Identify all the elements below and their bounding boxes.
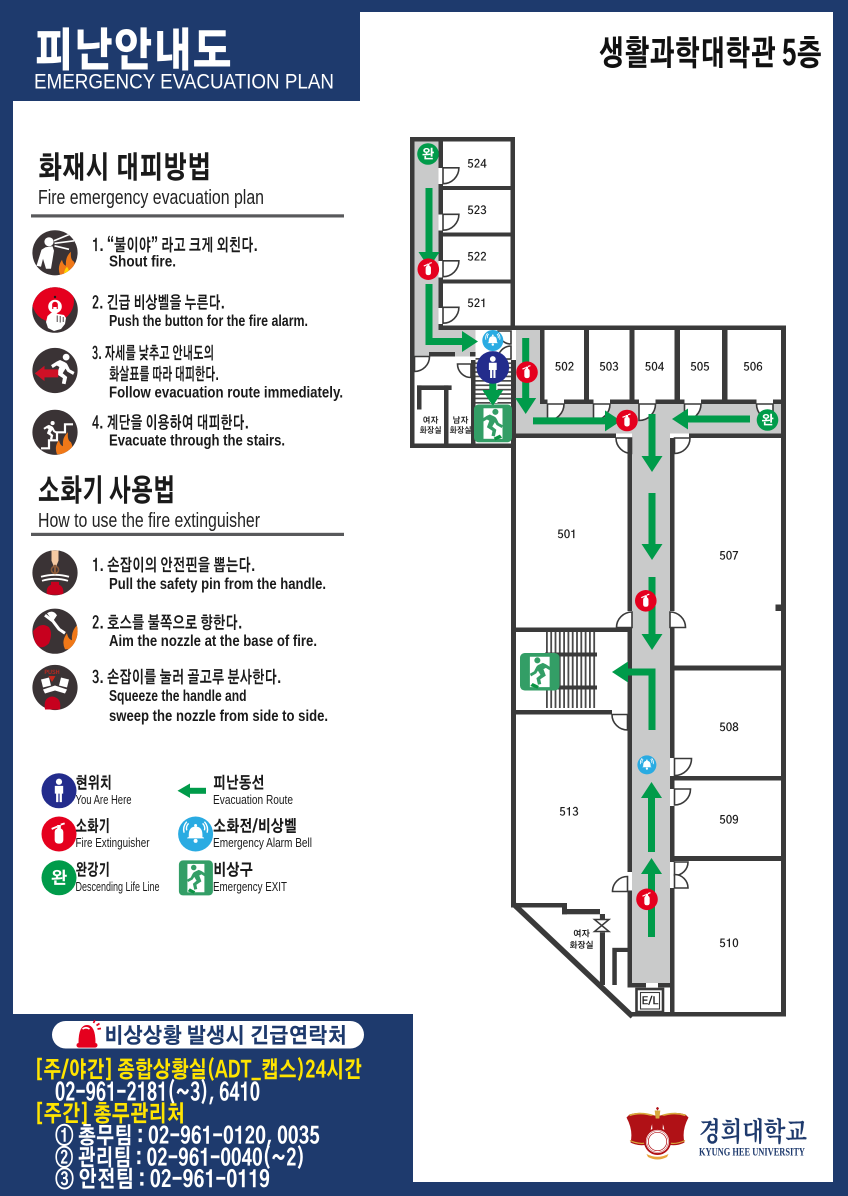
svg-text:Shout fire.: Shout fire. [109,254,176,271]
svg-text:Emergency Alarm Bell: Emergency Alarm Bell [213,835,312,850]
svg-text:Follow evacuation route immedi: Follow evacuation route immediately. [109,385,343,402]
svg-text:EMERGENCY EVACUATION PLAN: EMERGENCY EVACUATION PLAN [34,70,334,94]
svg-text:Fire Extinguisher: Fire Extinguisher [76,835,151,850]
svg-text:Pull the safety pin from the h: Pull the safety pin from the handle. [109,576,326,593]
svg-text:Evacuate through the stairs.: Evacuate through the stairs. [109,433,285,450]
svg-text:sweep the nozzle from side to: sweep the nozzle from side to side. [109,708,328,725]
svg-text:KYUNG HEE UNIVERSITY: KYUNG HEE UNIVERSITY [699,1145,805,1159]
svg-text:Fire emergency evacuation plan: Fire emergency evacuation plan [38,187,264,209]
svg-text:Emergency EXIT: Emergency EXIT [213,879,287,894]
svg-text:How to use the fire extinguish: How to use the fire extinguisher [38,510,260,532]
svg-text:Aim the nozzle at the base of: Aim the nozzle at the base of fire. [109,633,317,650]
svg-text:Evacuation Route: Evacuation Route [213,792,293,807]
svg-text:Squeeze the handle and: Squeeze the handle and [109,688,247,705]
svg-text:Push the button for the fire a: Push the button for the fire alarm. [109,313,308,330]
svg-text:Descending Life Line: Descending Life Line [76,879,160,894]
svg-text:You Are Here: You Are Here [76,792,132,807]
